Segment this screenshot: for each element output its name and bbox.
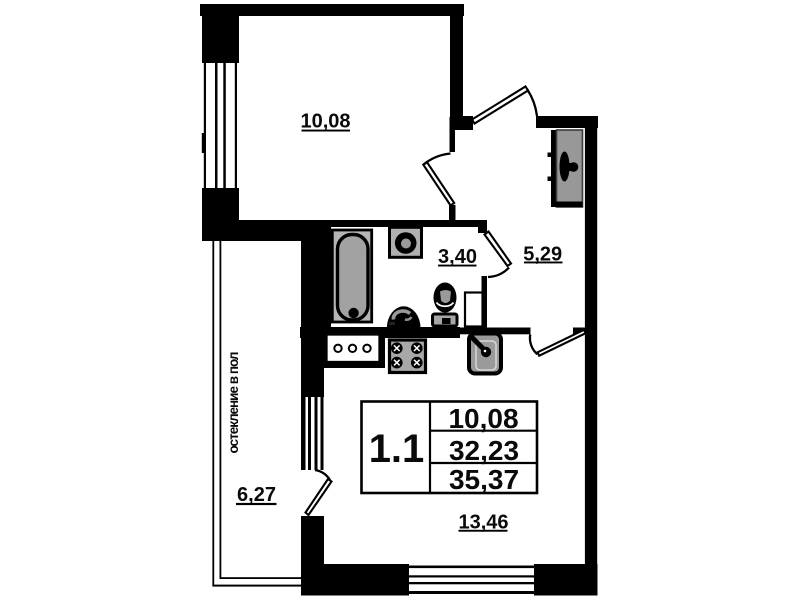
svg-text:1.1: 1.1 <box>369 427 425 471</box>
svg-text:35,37: 35,37 <box>449 464 519 495</box>
svg-text:10,08: 10,08 <box>300 111 350 133</box>
svg-text:10,08: 10,08 <box>448 403 518 434</box>
svg-text:32,23: 32,23 <box>449 435 519 466</box>
svg-text:6,27: 6,27 <box>237 484 276 506</box>
svg-text:остекление в пол: остекление в пол <box>226 352 241 454</box>
